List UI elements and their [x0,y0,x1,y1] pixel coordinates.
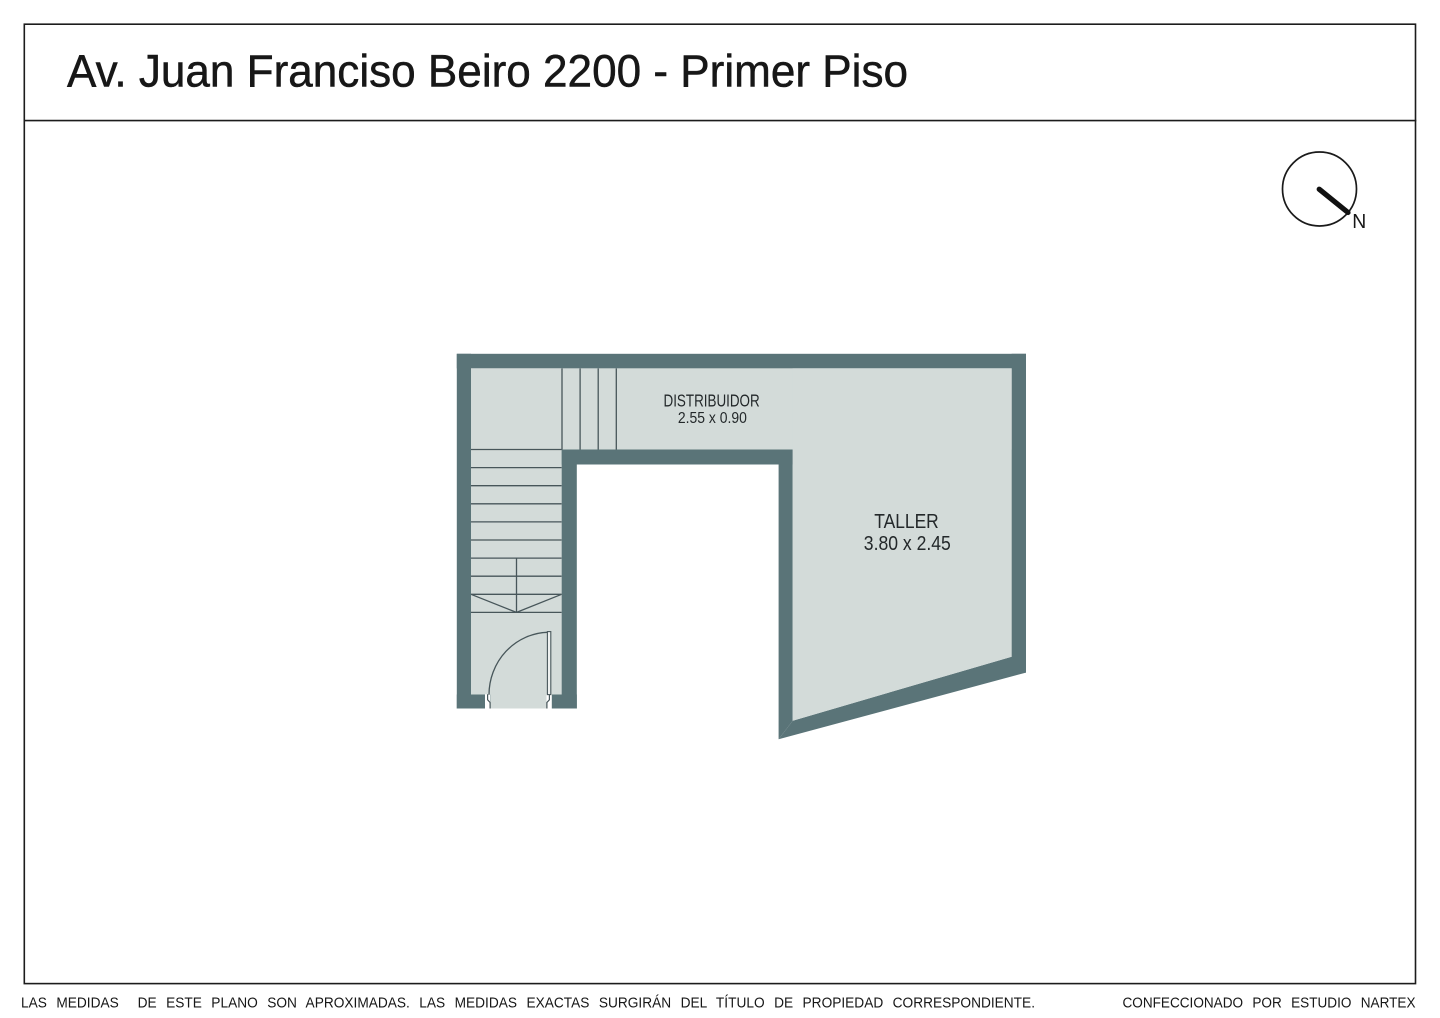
svg-text:DISTRIBUIDOR: DISTRIBUIDOR [664,390,760,410]
svg-text:N: N [1352,210,1366,233]
svg-text:LAS MEDIDAS DE ESTE PLANO SON: LAS MEDIDAS DE ESTE PLANO SON APROXIMADA… [21,995,1035,1012]
svg-text:Av. Juan Franciso Beiro 2200 -: Av. Juan Franciso Beiro 2200 - Primer Pi… [67,46,908,97]
svg-text:2.55 x 0.90: 2.55 x 0.90 [678,410,747,427]
svg-text:CONFECCIONADO POR ESTUDIO NART: CONFECCIONADO POR ESTUDIO NARTEX [1123,996,1416,1012]
svg-text:TALLER: TALLER [874,511,939,533]
svg-text:3.80 x 2.45: 3.80 x 2.45 [864,533,951,555]
